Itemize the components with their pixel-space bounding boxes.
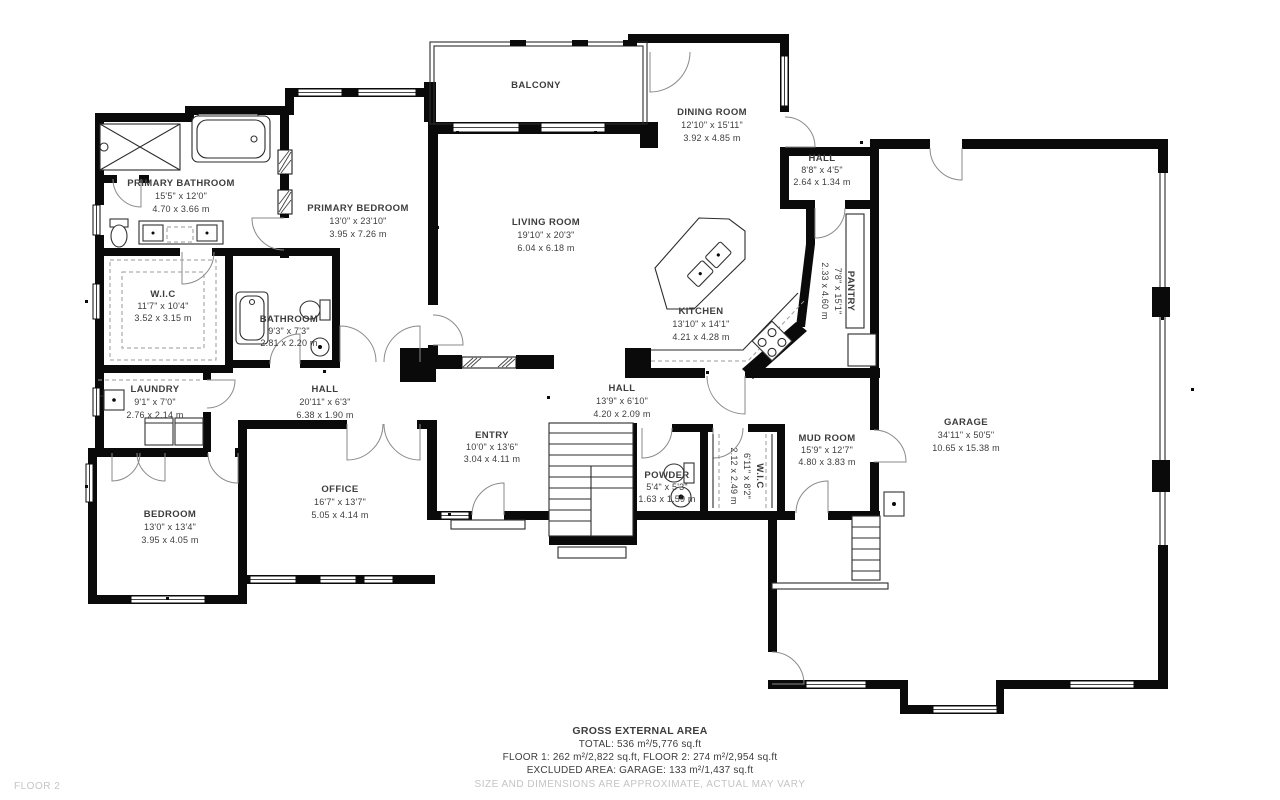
door-dining-hall — [785, 117, 815, 147]
svg-text:3.95 x 4.05 m: 3.95 x 4.05 m — [141, 535, 198, 545]
svg-text:10.65 x 15.38 m: 10.65 x 15.38 m — [932, 443, 1000, 453]
door-office-double-1 — [347, 424, 383, 460]
svg-text:3.52 x 3.15 m: 3.52 x 3.15 m — [134, 313, 191, 323]
door-bedroom2-closet-2 — [137, 453, 165, 481]
svg-text:2.12 x 2.49 m: 2.12 x 2.49 m — [729, 447, 739, 504]
svg-text:9'3" x 7'3": 9'3" x 7'3" — [268, 326, 310, 336]
door-bedroom-living — [433, 315, 463, 345]
svg-text:PRIMARY BATHROOM: PRIMARY BATHROOM — [127, 178, 235, 189]
svg-text:W.I.C: W.I.C — [150, 289, 175, 300]
svg-text:13'10" x 14'1": 13'10" x 14'1" — [672, 319, 729, 329]
svg-text:POWDER: POWDER — [644, 470, 689, 481]
room-label-office: OFFICE 16'7" x 13'7" 5.05 x 4.14 m — [311, 484, 368, 520]
room-label-mud-room: MUD ROOM 15'9" x 12'7" 4.80 x 3.83 m — [798, 433, 855, 467]
footer-excluded: EXCLUDED AREA: GARAGE: 133 m²/1,437 sq.f… — [527, 765, 754, 776]
kitchen-island — [655, 218, 745, 309]
utility-box-icon — [884, 492, 904, 516]
svg-text:BALCONY: BALCONY — [511, 80, 561, 91]
svg-text:3.92 x 4.85 m: 3.92 x 4.85 m — [683, 133, 740, 143]
svg-text:16'7" x 13'7": 16'7" x 13'7" — [314, 497, 366, 507]
room-label-primary-bathroom: PRIMARY BATHROOM 15'5" x 12'0" 4.70 x 3.… — [127, 178, 235, 214]
door-laundry — [207, 380, 235, 408]
door-bedroom2 — [208, 453, 238, 483]
svg-text:4.21 x 4.28 m: 4.21 x 4.28 m — [672, 332, 729, 342]
room-label-hall-upper: HALL 8'8" x 4'5" 2.64 x 1.34 m — [793, 153, 850, 187]
room-label-entry: ENTRY 10'0" x 13'6" 3.04 x 4.11 m — [464, 430, 520, 464]
room-label-primary-bedroom: PRIMARY BEDROOM 13'0" x 23'10" 3.95 x 7.… — [307, 203, 409, 239]
svg-text:LIVING ROOM: LIVING ROOM — [512, 217, 580, 228]
room-label-wic-primary: W.I.C 11'7" x 10'4" 3.52 x 3.15 m — [134, 289, 191, 323]
bathtub-icon — [192, 116, 270, 162]
entry-porch — [451, 520, 525, 529]
svg-text:2.33 x 4.60 m: 2.33 x 4.60 m — [820, 262, 830, 319]
room-label-hall-west: HALL 20'11" x 6'3" 6.38 x 1.90 m — [296, 384, 353, 420]
footer-floors: FLOOR 1: 262 m²/2,822 sq.ft, FLOOR 2: 27… — [503, 752, 778, 763]
room-label-garage: GARAGE 34'11" x 50'5" 10.65 x 15.38 m — [932, 417, 1000, 453]
svg-text:MUD ROOM: MUD ROOM — [798, 433, 855, 444]
svg-text:10'0" x 13'6": 10'0" x 13'6" — [466, 442, 518, 452]
svg-text:4.20 x 2.09 m: 4.20 x 2.09 m — [593, 409, 650, 419]
toilet-icon-primary — [110, 219, 128, 247]
door-garage-top — [930, 148, 962, 180]
room-label-bathroom: BATHROOM 9'3" x 7'3" 2.81 x 2.20 m — [260, 314, 318, 348]
svg-text:13'9" x 6'10": 13'9" x 6'10" — [596, 396, 648, 406]
svg-text:13'0" x 23'10": 13'0" x 23'10" — [329, 216, 386, 226]
floor-label: FLOOR 2 — [14, 781, 60, 792]
room-label-living-room: LIVING ROOM 19'10" x 20'3" 6.04 x 6.18 m — [512, 217, 580, 253]
svg-text:15'5" x 12'0": 15'5" x 12'0" — [155, 191, 207, 201]
dryer-icon — [175, 418, 203, 445]
svg-text:15'9" x 12'7": 15'9" x 12'7" — [801, 445, 853, 455]
svg-text:9'1" x 7'0": 9'1" x 7'0" — [134, 397, 176, 407]
svg-text:PRIMARY BEDROOM: PRIMARY BEDROOM — [307, 203, 409, 214]
svg-text:3.04 x 4.11 m: 3.04 x 4.11 m — [464, 454, 520, 464]
door-mudroom-garage — [874, 430, 906, 462]
door-bath-bedroom — [252, 218, 284, 250]
svg-text:34'11" x 50'5": 34'11" x 50'5" — [938, 430, 995, 440]
svg-text:12'10" x 15'11": 12'10" x 15'11" — [681, 120, 743, 130]
svg-text:20'11" x 6'3": 20'11" x 6'3" — [299, 397, 350, 407]
svg-text:13'0" x 13'4": 13'0" x 13'4" — [144, 522, 196, 532]
svg-text:8'8" x 4'5": 8'8" x 4'5" — [801, 165, 843, 175]
svg-text:4.80 x 3.83 m: 4.80 x 3.83 m — [798, 457, 855, 467]
room-label-kitchen: KITCHEN 13'10" x 14'1" 4.21 x 4.28 m — [672, 306, 729, 342]
door-hall-pantry — [815, 208, 845, 238]
stair-porch — [558, 547, 626, 558]
svg-text:ENTRY: ENTRY — [475, 430, 509, 441]
room-label-laundry: LAUNDRY 9'1" x 7'0" 2.76 x 2.14 m — [126, 384, 183, 420]
shower-icon — [100, 124, 180, 170]
svg-text:HALL: HALL — [809, 153, 836, 164]
room-label-dining-room: DINING ROOM 12'10" x 15'11" 3.92 x 4.85 … — [677, 107, 747, 143]
svg-text:HALL: HALL — [609, 383, 636, 394]
svg-text:BEDROOM: BEDROOM — [144, 509, 196, 520]
svg-text:4.70 x 3.66 m: 4.70 x 3.66 m — [152, 204, 209, 214]
room-label-powder: POWDER 5'4" x 5'3" 1.63 x 1.59 m — [638, 470, 695, 504]
wall-markers — [85, 91, 1194, 600]
stove-icon — [752, 321, 792, 361]
svg-text:6.38 x 1.90 m: 6.38 x 1.90 m — [296, 410, 353, 420]
footer-title: GROSS EXTERNAL AREA — [572, 725, 707, 737]
room-label-bedroom: BEDROOM 13'0" x 13'4" 3.95 x 4.05 m — [141, 509, 198, 545]
svg-text:19'10" x 20'3": 19'10" x 20'3" — [517, 230, 574, 240]
washer-icon — [145, 418, 173, 445]
door-front-entry — [472, 483, 504, 515]
footer: GROSS EXTERNAL AREA TOTAL: 536 m²/5,776 … — [14, 725, 805, 792]
staircase-garage — [772, 516, 888, 589]
door-garage-rear — [772, 652, 804, 684]
door-powder — [642, 428, 672, 458]
footer-disclaimer: SIZE AND DIMENSIONS ARE APPROXIMATE, ACT… — [475, 779, 806, 790]
svg-text:OFFICE: OFFICE — [321, 484, 358, 495]
door-wic-primary — [182, 252, 214, 284]
svg-text:2.76 x 2.14 m: 2.76 x 2.14 m — [126, 410, 183, 420]
svg-text:1.63 x 1.59 m: 1.63 x 1.59 m — [638, 494, 695, 504]
svg-text:HALL: HALL — [312, 384, 339, 395]
svg-text:7'8" x 15'1": 7'8" x 15'1" — [833, 268, 843, 315]
double-vanity-icon — [139, 221, 223, 244]
svg-text:3.95 x 7.26 m: 3.95 x 7.26 m — [329, 229, 386, 239]
svg-text:2.64 x 1.34 m: 2.64 x 1.34 m — [793, 177, 850, 187]
svg-text:5.05 x 4.14 m: 5.05 x 4.14 m — [311, 510, 368, 520]
svg-text:PANTRY: PANTRY — [845, 271, 856, 312]
door-bedroom-double-1 — [340, 326, 376, 362]
svg-text:W.I.C: W.I.C — [754, 463, 765, 488]
pass-through-opening — [462, 357, 516, 368]
svg-text:5'4" x 5'3": 5'4" x 5'3" — [646, 482, 688, 492]
room-label-pantry: PANTRY 7'8" x 15'1" 2.33 x 4.60 m — [820, 262, 856, 319]
svg-text:KITCHEN: KITCHEN — [678, 306, 723, 317]
door-balcony-dining — [650, 52, 690, 92]
door-bedroom2-closet-1 — [112, 453, 140, 481]
room-label-wic-mud: W.I.C 6'11" x 8'2" 2.12 x 2.49 m — [729, 447, 765, 504]
floor-plan-canvas: BALCONY PRIMARY BATHROOM 15'5" x 12'0" 4… — [0, 0, 1280, 800]
room-label-balcony: BALCONY — [511, 80, 561, 91]
svg-text:BATHROOM: BATHROOM — [260, 314, 318, 325]
svg-text:DINING ROOM: DINING ROOM — [677, 107, 747, 118]
room-label-hall-center: HALL 13'9" x 6'10" 4.20 x 2.09 m — [593, 383, 650, 419]
laundry-sink-icon — [100, 390, 124, 410]
door-office-double-2 — [384, 424, 420, 460]
svg-text:2.81 x 2.20 m: 2.81 x 2.20 m — [260, 338, 317, 348]
footer-total: TOTAL: 536 m²/5,776 sq.ft — [579, 739, 701, 750]
svg-text:11'7" x 10'4": 11'7" x 10'4" — [137, 301, 188, 311]
svg-text:6'11" x 8'2": 6'11" x 8'2" — [742, 453, 752, 499]
door-mudroom-exterior — [796, 481, 828, 513]
svg-text:6.04 x 6.18 m: 6.04 x 6.18 m — [517, 243, 574, 253]
door-kitchen-mudroom — [707, 376, 745, 414]
svg-text:LAUNDRY: LAUNDRY — [131, 384, 180, 395]
staircase-main — [549, 423, 633, 536]
svg-text:GARAGE: GARAGE — [944, 417, 988, 428]
